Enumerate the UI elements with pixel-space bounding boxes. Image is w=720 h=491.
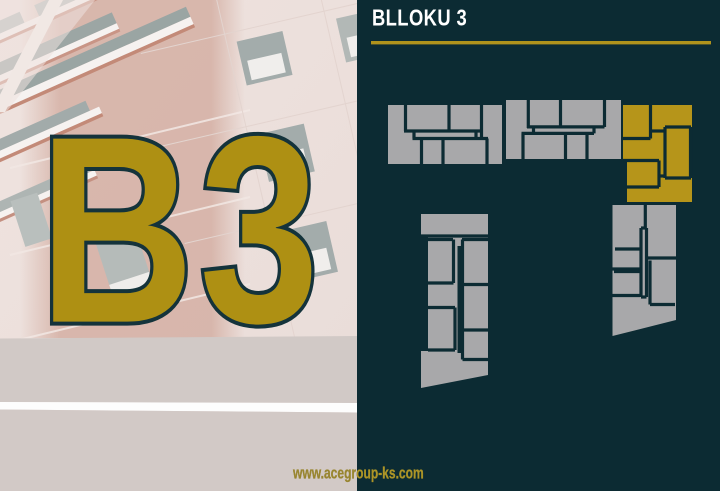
- svg-text:B3: B3: [39, 82, 324, 379]
- svg-text:BLLOKU 3: BLLOKU 3: [372, 5, 467, 30]
